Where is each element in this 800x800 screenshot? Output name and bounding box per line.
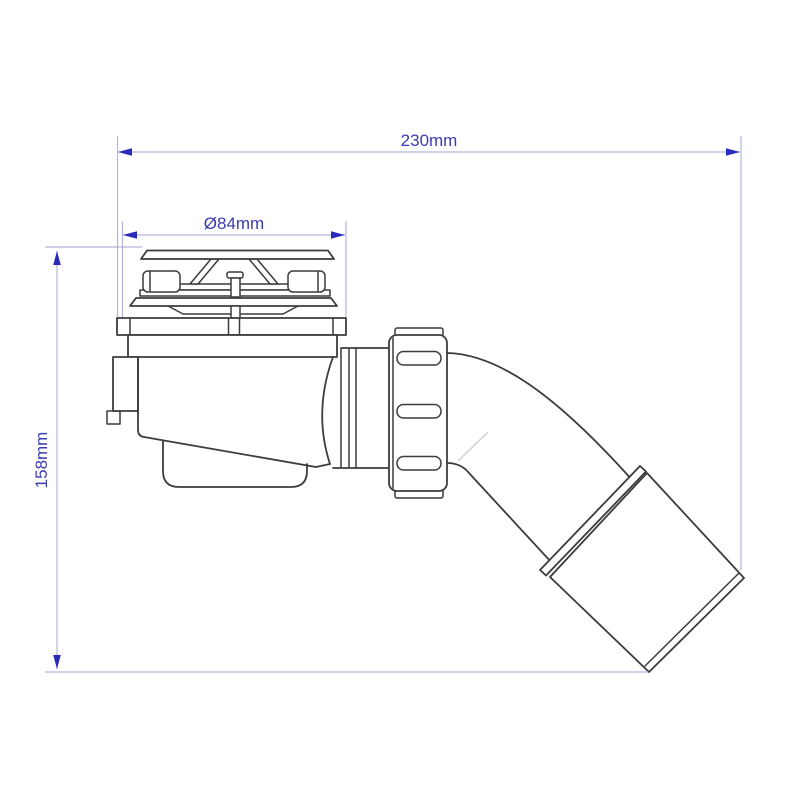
stem [231, 278, 240, 297]
trap-body [107, 357, 333, 487]
arrow-right-icon [726, 148, 740, 156]
arrow-left-icon [118, 148, 132, 156]
sump [163, 441, 307, 487]
stem-cap [227, 272, 243, 278]
nut-rib-2 [397, 405, 441, 419]
dimension-label-width: 230mm [401, 131, 458, 150]
technical-drawing-svg: 230mm Ø84mm 158mm [0, 0, 800, 800]
nut-rib-1 [397, 352, 441, 366]
outlet-pipe [550, 473, 744, 672]
cap-disc [141, 251, 334, 260]
arrow-down-icon [53, 655, 61, 669]
outlet-pipe-group [540, 466, 744, 672]
outlet-cylinder [333, 348, 389, 468]
dimension-label-diameter: Ø84mm [204, 214, 264, 233]
body-top-section [128, 335, 337, 357]
arrow-right-icon [331, 231, 345, 239]
stem-lower [231, 306, 240, 318]
clip-tab-left [143, 271, 180, 292]
trap-flange [117, 298, 346, 357]
clip-tab-right [288, 271, 325, 292]
cap-web-left [190, 259, 219, 284]
dimension-label-height: 158mm [32, 432, 51, 489]
nut-rib-3 [397, 457, 441, 471]
elbow-top-edge [447, 353, 633, 481]
elbow-bottom-edge [447, 463, 552, 563]
dimension-overall-height: 158mm [32, 247, 648, 672]
body-left-edge [138, 357, 144, 437]
drawing-canvas: 230mm Ø84mm 158mm [0, 0, 800, 800]
trap-cap [140, 251, 334, 298]
tray-flange-bar [117, 318, 346, 335]
body-right-curve [316, 357, 333, 467]
compression-nut [389, 328, 447, 498]
body-bottom-slope [144, 437, 316, 467]
elbow-highlight [458, 432, 488, 461]
side-step [107, 411, 120, 424]
arrow-left-icon [123, 231, 137, 239]
cap-web-right [249, 259, 278, 284]
flange-disc [130, 298, 337, 306]
arrow-up-icon [53, 251, 61, 265]
side-tab [113, 357, 138, 411]
